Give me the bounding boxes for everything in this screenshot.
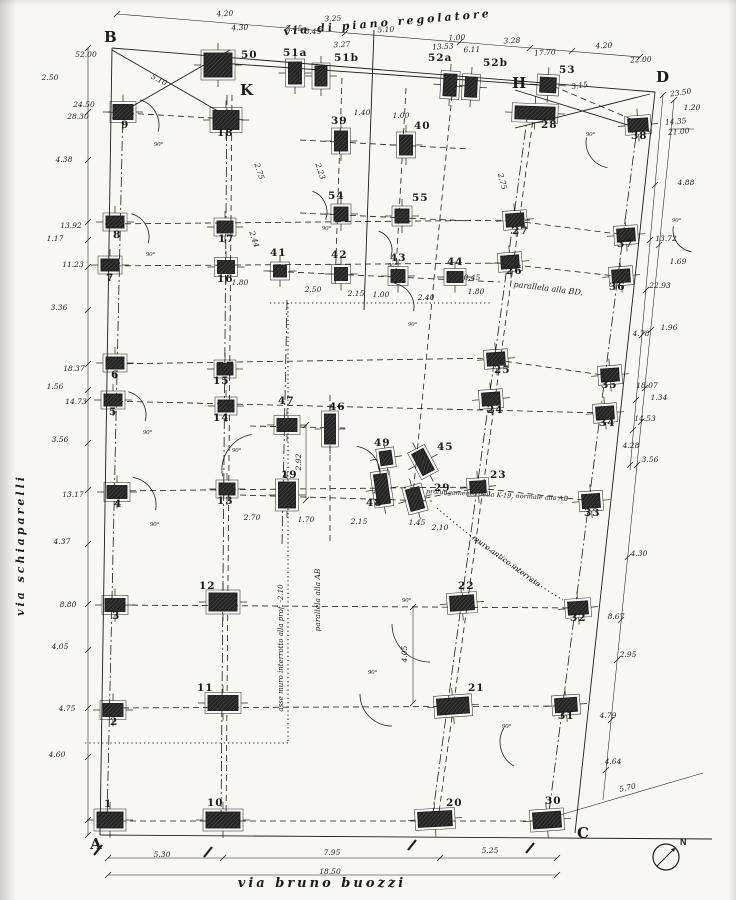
- dim-label: 1.70: [298, 515, 315, 524]
- column-label-26: 26: [506, 265, 523, 277]
- column-block: [436, 697, 469, 715]
- plan-line: [364, 30, 374, 310]
- column-tick: [387, 468, 388, 475]
- dim-label: 1.56: [47, 382, 64, 391]
- dim-label: 14.73: [65, 397, 87, 406]
- dim-label: 22.00: [629, 54, 652, 64]
- column-tick: [395, 456, 402, 457]
- column-label-15: 15: [213, 375, 230, 387]
- column-block: [464, 77, 477, 98]
- angle-label: 90°: [143, 429, 153, 436]
- dim-label: 4.20: [215, 9, 233, 19]
- dim-label: 2.40: [417, 293, 435, 302]
- dim-label: 5.70: [618, 781, 636, 793]
- dim-label: 4.37: [53, 537, 71, 546]
- column-label-48: 48: [366, 497, 383, 509]
- dim-label: 4.60: [48, 750, 66, 759]
- column-block: [218, 261, 235, 274]
- annotation: parallela alla AB: [313, 568, 322, 631]
- annotation: asse muro interrotto alla prof. -2.10: [277, 584, 285, 712]
- column-label-43: 43: [390, 252, 407, 264]
- dim-label: 13.53: [432, 41, 454, 51]
- column-label-51a: 51a: [283, 47, 307, 59]
- column-51b: [305, 56, 337, 96]
- column-tick: [391, 487, 398, 488]
- column-label-10: 10: [207, 797, 224, 809]
- dim-label: 21.00: [667, 126, 690, 137]
- dim-label: 17.70: [534, 47, 556, 57]
- dim-label: 1.69: [670, 257, 687, 266]
- north-label: N: [680, 837, 687, 847]
- dim-label: 4.20: [594, 41, 612, 51]
- dim-label: 24.50: [72, 100, 95, 109]
- column-block: [277, 419, 297, 432]
- plan-line: [107, 401, 605, 413]
- column-block: [279, 482, 296, 508]
- column-label-3: 3: [112, 610, 120, 622]
- dim-label: 11.23: [62, 260, 84, 269]
- angle-arc: [128, 392, 146, 421]
- column-tick: [413, 443, 416, 449]
- angle-label: 90°: [146, 251, 156, 258]
- plan-line: [240, 495, 432, 501]
- dim-label: 4.05: [51, 642, 69, 651]
- column-label-32: 32: [570, 612, 587, 624]
- column-block: [113, 105, 133, 120]
- column-tick: [379, 464, 380, 471]
- plan-line: [226, 95, 232, 822]
- dim-label: 3.15: [571, 80, 589, 91]
- column-block: [400, 135, 413, 155]
- column-label-39: 39: [331, 115, 348, 127]
- column-tick: [410, 479, 412, 486]
- column-label-13: 13: [217, 495, 234, 507]
- column-block: [106, 216, 124, 228]
- column-43: [381, 260, 415, 293]
- angle-label: 90°: [368, 669, 378, 676]
- dim-label: 2.75: [252, 161, 266, 181]
- dim-label: 7.95: [324, 848, 341, 857]
- dim-label: 1.80: [468, 287, 485, 296]
- angle-arc: [133, 477, 156, 510]
- dim-label: 13.72: [655, 234, 677, 243]
- dim-label: 2.15: [350, 517, 368, 526]
- blueprint-scan: 90°90°90°90°90°90°90°90°90°90°90°90°90°9…: [0, 0, 736, 900]
- column-label-52a: 52a: [428, 52, 452, 64]
- column-29: [393, 474, 437, 523]
- dim-label: 18.07: [636, 381, 658, 390]
- angle-arc: [360, 694, 392, 726]
- angle-label: 90°: [150, 521, 160, 528]
- dim-label: 3.28: [503, 36, 520, 46]
- column-block: [101, 259, 119, 271]
- plan-line: [496, 360, 610, 376]
- column-label-20: 20: [446, 797, 463, 809]
- street-label: via bruno buozzi: [238, 876, 406, 891]
- dim-label: 1.34: [651, 393, 668, 402]
- column-block: [107, 486, 127, 499]
- column-label-51b: 51b: [334, 52, 359, 64]
- column-label-46: 46: [329, 401, 346, 413]
- column-label-7: 7: [106, 272, 114, 284]
- grid-letter-H: H: [512, 74, 526, 92]
- dim-label: 4.64: [604, 757, 622, 766]
- column-block: [217, 363, 233, 375]
- column-39: [325, 121, 358, 161]
- column-block: [97, 812, 123, 828]
- survey-mark: [204, 847, 212, 857]
- column-block: [395, 209, 409, 223]
- plan-line: [113, 706, 566, 708]
- dim-label: 4.30: [230, 23, 248, 33]
- column-block: [450, 595, 475, 612]
- dim-label: 2.44: [247, 229, 261, 249]
- dim-label: 4.75: [58, 704, 76, 713]
- column-block: [391, 270, 405, 283]
- column-label-8: 8: [113, 229, 121, 241]
- dim-label: 5.25: [482, 846, 499, 855]
- dim-label: 14.53: [634, 414, 656, 423]
- dim-label: 13.92: [60, 221, 82, 230]
- dim-label: 1.00: [393, 111, 410, 120]
- column-label-38: 38: [631, 130, 648, 142]
- column-label-18: 18: [217, 127, 234, 139]
- column-block: [217, 221, 233, 233]
- dim-label: 13.17: [62, 490, 84, 499]
- column-label-49: 49: [374, 437, 391, 449]
- dim-label: 3.27: [333, 40, 350, 50]
- column-tick: [431, 454, 437, 457]
- plan-line: [300, 140, 470, 149]
- column-label-28: 28: [541, 119, 558, 131]
- column-block: [206, 812, 240, 828]
- plan-line: [515, 221, 626, 235]
- column-block: [274, 265, 287, 277]
- dim-label: 2.95: [619, 650, 637, 659]
- column-label-44: 44: [447, 256, 464, 268]
- column-block: [315, 66, 327, 86]
- dim-label: 4.38: [55, 155, 73, 164]
- dim-label: 8.67: [608, 612, 625, 621]
- survey-mark: [408, 840, 416, 850]
- angle-label: 90°: [402, 597, 412, 604]
- column-label-24: 24: [487, 404, 504, 416]
- angle-arc: [313, 191, 328, 219]
- angle-label: 90°: [408, 321, 418, 328]
- dim-label: 1.20: [684, 103, 701, 112]
- dim-label: 1.96: [661, 323, 678, 332]
- column-label-40: 40: [414, 120, 431, 132]
- column-55: [385, 199, 419, 233]
- column-label-35: 35: [601, 379, 618, 391]
- column-block: [379, 450, 393, 466]
- dim-label: 1.17: [47, 234, 64, 243]
- column-label-31: 31: [558, 710, 575, 722]
- column-block: [208, 696, 238, 711]
- column-label-45: 45: [437, 441, 454, 453]
- dim-label: 3.56: [52, 435, 69, 444]
- plan-line: [505, 264, 625, 277]
- dim-label: 2.92: [294, 453, 303, 471]
- dim-label: 2.70: [243, 513, 261, 522]
- dim-label: 2.23: [313, 161, 327, 181]
- dim-label: 0.45: [464, 273, 481, 282]
- column-label-25: 25: [494, 364, 511, 376]
- column-label-50: 50: [241, 49, 258, 61]
- annotation: parallela alla BD.: [513, 280, 584, 297]
- column-block: [532, 811, 561, 829]
- column-block: [418, 811, 453, 828]
- dim-label: 1.00: [373, 290, 390, 299]
- column-label-55: 55: [412, 192, 429, 204]
- column-block: [412, 448, 435, 475]
- dim-label: 3.36: [51, 303, 68, 312]
- angle-label: 90°: [154, 141, 164, 148]
- dim-label: 8.80: [60, 600, 77, 609]
- column-47: [267, 409, 307, 442]
- plan-line: [603, 100, 674, 800]
- plan-line: [107, 358, 500, 364]
- dim-label: 52.00: [75, 50, 97, 59]
- column-label-42: 42: [331, 249, 348, 261]
- column-tick: [399, 502, 406, 504]
- column-label-41: 41: [270, 247, 287, 259]
- north-arrow-needle: [657, 848, 675, 866]
- plan-line: [105, 220, 530, 224]
- grid-letter-A: A: [89, 835, 102, 853]
- dim-label: 14.35: [665, 116, 687, 127]
- column-42: [325, 258, 358, 291]
- plan-line: [560, 773, 703, 815]
- column-block: [405, 487, 424, 512]
- angle-label: 90°: [232, 447, 242, 454]
- column-label-21: 21: [468, 682, 485, 694]
- dim-label: 22.93: [648, 281, 671, 290]
- angle-arc: [500, 728, 514, 766]
- dim-label: 6.11: [463, 45, 480, 55]
- annotation: muro antico interrato: [471, 533, 543, 589]
- column-block: [447, 272, 463, 283]
- column-label-5: 5: [109, 406, 117, 418]
- grid-letter-K: K: [240, 81, 254, 99]
- annotation: prolungamento della K-19, normale alla A…: [426, 487, 569, 502]
- angle-arc: [140, 100, 159, 132]
- column-block: [103, 704, 123, 717]
- column-label-9: 9: [121, 119, 129, 131]
- column-tick: [430, 475, 433, 481]
- column-label-53: 53: [559, 64, 576, 76]
- street-label: via schiaparelli: [14, 474, 27, 616]
- column-label-36: 36: [609, 281, 626, 293]
- plan-line: [112, 605, 580, 608]
- column-block: [289, 62, 302, 84]
- column-label-52b: 52b: [483, 57, 508, 69]
- dim-label: 1.80: [232, 278, 249, 287]
- column-tick: [408, 466, 414, 469]
- column-label-22: 22: [458, 580, 475, 592]
- plan-svg: 90°90°90°90°90°90°90°90°90°90°90°90°90°9…: [0, 0, 736, 900]
- dim-label: 2.50: [304, 285, 322, 294]
- column-tick: [385, 507, 386, 514]
- dim-label: 1.40: [354, 108, 371, 117]
- column-label-23: 23: [490, 469, 507, 481]
- angle-label: 90°: [322, 225, 332, 232]
- angle-arc: [392, 624, 430, 662]
- dim-label: 4.30: [630, 549, 648, 558]
- column-label-30: 30: [545, 795, 562, 807]
- column-label-1: 1: [104, 798, 112, 810]
- dim-label: 4.79: [599, 711, 617, 720]
- column-block: [219, 483, 235, 495]
- column-block: [204, 53, 232, 77]
- column-block: [443, 74, 457, 97]
- column-label-6: 6: [111, 369, 119, 381]
- dim-label: 28.30: [66, 112, 89, 121]
- survey-mark: [526, 843, 534, 853]
- column-label-17: 17: [218, 233, 235, 245]
- dim-label: 2.75: [496, 171, 509, 191]
- column-block: [540, 77, 557, 93]
- angle-label: 90°: [502, 723, 512, 730]
- angle-label: 90°: [586, 131, 596, 138]
- column-50: [194, 43, 242, 87]
- dim-label: 23.50: [668, 87, 692, 99]
- dim-label: 4.88: [677, 178, 695, 187]
- angle-arc: [222, 435, 252, 477]
- dim-label: 2.10: [431, 523, 449, 532]
- column-block: [335, 131, 348, 151]
- column-label-4: 4: [114, 498, 122, 510]
- dim-label: 18.37: [63, 364, 85, 373]
- column-label-11: 11: [197, 682, 214, 694]
- column-label-47: 47: [278, 395, 295, 407]
- grid-letter-C: C: [577, 824, 589, 842]
- dim-label: 1.45: [409, 518, 426, 527]
- plan-line: [100, 835, 712, 839]
- column-label-33: 33: [584, 507, 601, 519]
- column-52b: [454, 66, 488, 108]
- dim-label: 3.56: [642, 455, 659, 464]
- grid-letter-B: B: [104, 28, 117, 46]
- column-block: [325, 414, 336, 444]
- dim-label: 4.28: [622, 441, 640, 450]
- angle-arc: [131, 214, 149, 243]
- column-block: [335, 268, 348, 281]
- column-block: [334, 207, 348, 221]
- column-41: [264, 255, 297, 287]
- column-block: [106, 357, 124, 369]
- dim-label: 2.15: [347, 289, 365, 298]
- angle-arc: [357, 446, 380, 479]
- column-label-54: 54: [328, 190, 345, 202]
- angle-label: 90°: [672, 217, 682, 224]
- column-label-2: 2: [110, 716, 118, 728]
- dim-label: 5.30: [154, 850, 171, 859]
- column-block: [104, 394, 122, 406]
- column-label-12: 12: [199, 580, 216, 592]
- angle-arc: [586, 138, 607, 168]
- dim-label: 4.78: [632, 329, 650, 338]
- column-block: [209, 593, 237, 611]
- grid-letter-D: D: [656, 68, 669, 86]
- column-block: [218, 400, 234, 412]
- dim-label: 2.50: [41, 73, 59, 82]
- column-label-37: 37: [617, 238, 634, 250]
- column-label-27: 27: [512, 225, 529, 237]
- dim-tick: [630, 427, 636, 433]
- dim-label: 18.50: [319, 867, 341, 876]
- column-label-14: 14: [213, 412, 230, 424]
- angle-arc: [394, 283, 414, 311]
- annotation: 5.10: [150, 72, 169, 88]
- dim-label: 4.05: [400, 645, 409, 663]
- column-label-34: 34: [599, 417, 616, 429]
